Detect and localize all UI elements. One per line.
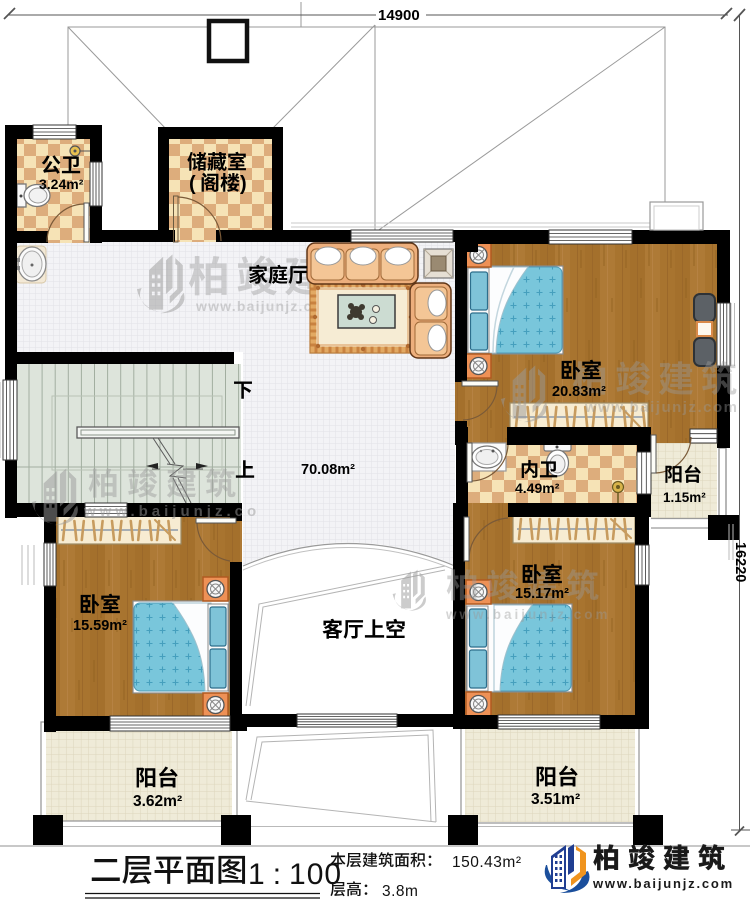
svg-text:): ): [240, 173, 247, 195]
svg-text:www.baijunjz.com: www.baijunjz.com: [445, 607, 611, 622]
svg-text:1.15m²: 1.15m²: [663, 490, 706, 505]
svg-text:1 : 100: 1 : 100: [248, 858, 342, 891]
svg-text:3.8m: 3.8m: [382, 883, 418, 900]
svg-text:(: (: [189, 173, 196, 195]
svg-text:www.baijunjz.co: www.baijunjz.co: [83, 503, 260, 520]
svg-text:70.08m²: 70.08m²: [301, 462, 355, 478]
svg-text:www.baijunjz.com: www.baijunjz.com: [592, 876, 734, 891]
svg-text:20.83m²: 20.83m²: [552, 384, 606, 400]
svg-text:3.51m²: 3.51m²: [531, 791, 580, 808]
svg-text:www.baijunjz.com: www.baijunjz.com: [584, 399, 738, 416]
svg-text:4.49m²: 4.49m²: [515, 480, 560, 496]
svg-text:3.62m²: 3.62m²: [133, 793, 182, 810]
svg-text:150.43m²: 150.43m²: [452, 854, 521, 871]
svg-text:14900: 14900: [378, 7, 420, 24]
svg-text:16220: 16220: [732, 542, 748, 582]
svg-text:15.59m²: 15.59m²: [73, 618, 127, 634]
svg-text:3.24m²: 3.24m²: [39, 176, 84, 192]
svg-text:15.17m²: 15.17m²: [515, 586, 569, 602]
